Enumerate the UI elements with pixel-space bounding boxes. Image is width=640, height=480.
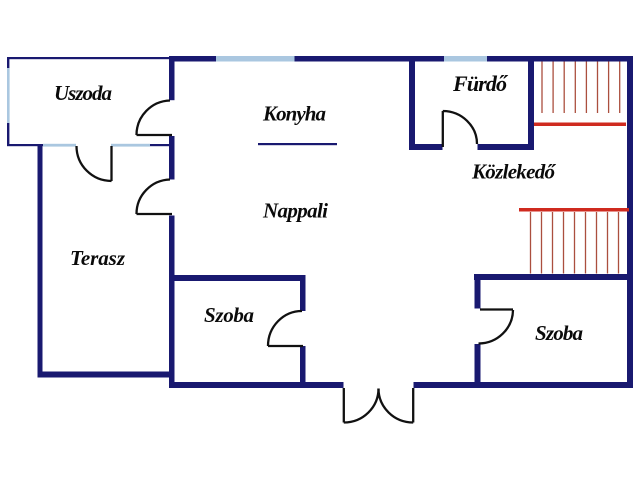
svg-text:Konyha: Konyha <box>262 102 326 126</box>
svg-text:Közlekedő: Közlekedő <box>471 160 557 184</box>
svg-text:Terasz: Terasz <box>70 246 126 270</box>
svg-text:Uszoda: Uszoda <box>54 81 112 105</box>
svg-text:Fürdő: Fürdő <box>452 71 509 96</box>
svg-text:Szoba: Szoba <box>204 303 254 327</box>
svg-text:Nappali: Nappali <box>262 199 328 223</box>
svg-text:Szoba: Szoba <box>535 321 583 345</box>
